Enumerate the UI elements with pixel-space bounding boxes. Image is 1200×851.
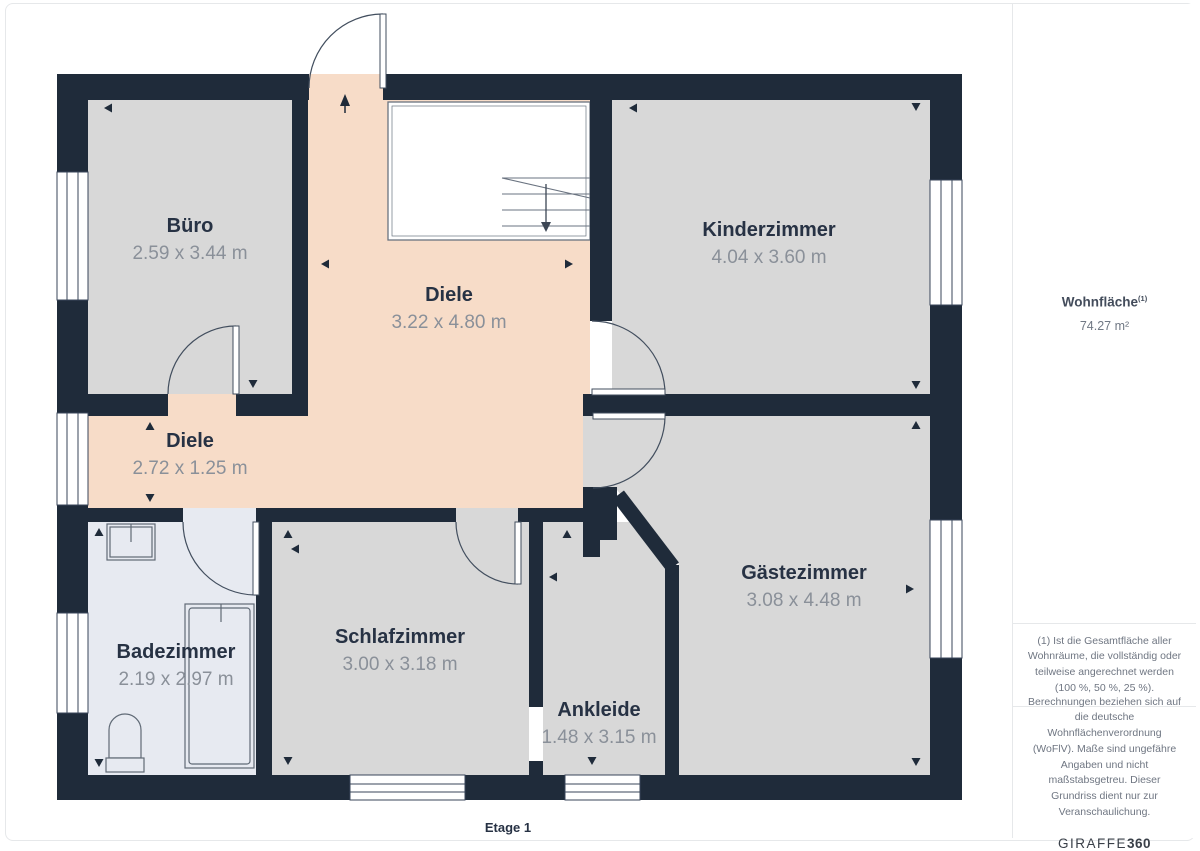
room-label-ankleide: Ankleide [557,699,640,721]
room-label-diele-flur: Diele [166,430,214,452]
footnote-1-text: (1) Ist die Gesamtfläche aller Wohnräume… [1026,634,1183,697]
room-label-badezimmer: Badezimmer [117,641,236,663]
room-label-buero: Büro [167,215,214,237]
room-label-kinderzimmer: Kinderzimmer [702,219,836,241]
window [57,613,88,713]
footnote-2-section: Berechnungen beziehen sich auf die deuts… [1013,707,1196,838]
window [565,775,640,800]
room-dims-schlafzimmer: 3.00 x 3.18 m [342,654,457,675]
room-floor-schlafzimmer [272,522,529,775]
area-title: Wohnfläche(1) [1062,294,1147,310]
schlaf-threshold [456,508,518,522]
area-summary-section: Wohnfläche(1) 74.27 m² [1013,4,1196,623]
floorplan-drawing: Büro 2.59 x 3.44 m Diele 3.22 x 4.80 m K… [0,0,1012,848]
window [930,180,962,305]
floor-caption: Etage 1 [485,820,531,835]
info-sidebar: Wohnfläche(1) 74.27 m² (1) Ist die Gesam… [1012,4,1196,838]
window [350,775,465,800]
window [57,172,88,300]
toilet-icon [106,714,144,772]
entrance-threshold [309,74,383,100]
window [57,413,88,505]
area-title-text: Wohnfläche [1062,295,1138,310]
room-dims-badezimmer: 2.19 x 2.97 m [118,669,233,690]
room-dims-ankleide: 1.48 x 3.15 m [541,727,656,748]
room-dims-kinderzimmer: 4.04 x 3.60 m [711,247,826,268]
staircase [388,102,590,240]
room-dims-diele-flur: 2.72 x 1.25 m [132,458,247,479]
sink-icon [107,524,155,560]
room-label-schlafzimmer: Schlafzimmer [335,626,465,648]
logo-text-bold: 360 [1127,836,1151,851]
room-label-gaestezimmer: Gästezimmer [741,562,867,584]
bad-threshold [183,508,256,522]
footnote-2-text: Berechnungen beziehen sich auf die deuts… [1026,695,1183,821]
room-label-diele-og: Diele [425,284,473,306]
area-title-superscript: (1) [1138,294,1147,303]
giraffe360-logo: GIRAFFE360 [1058,836,1151,851]
area-value: 74.27 m² [1080,319,1129,333]
logo-text-regular: GIRAFFE [1058,836,1127,851]
window [930,520,962,658]
room-dims-buero: 2.59 x 3.44 m [132,243,247,264]
room-dims-gaestezimmer: 3.08 x 4.48 m [746,590,861,611]
room-dims-diele-og: 3.22 x 4.80 m [391,312,506,333]
buero-threshold [168,394,236,416]
